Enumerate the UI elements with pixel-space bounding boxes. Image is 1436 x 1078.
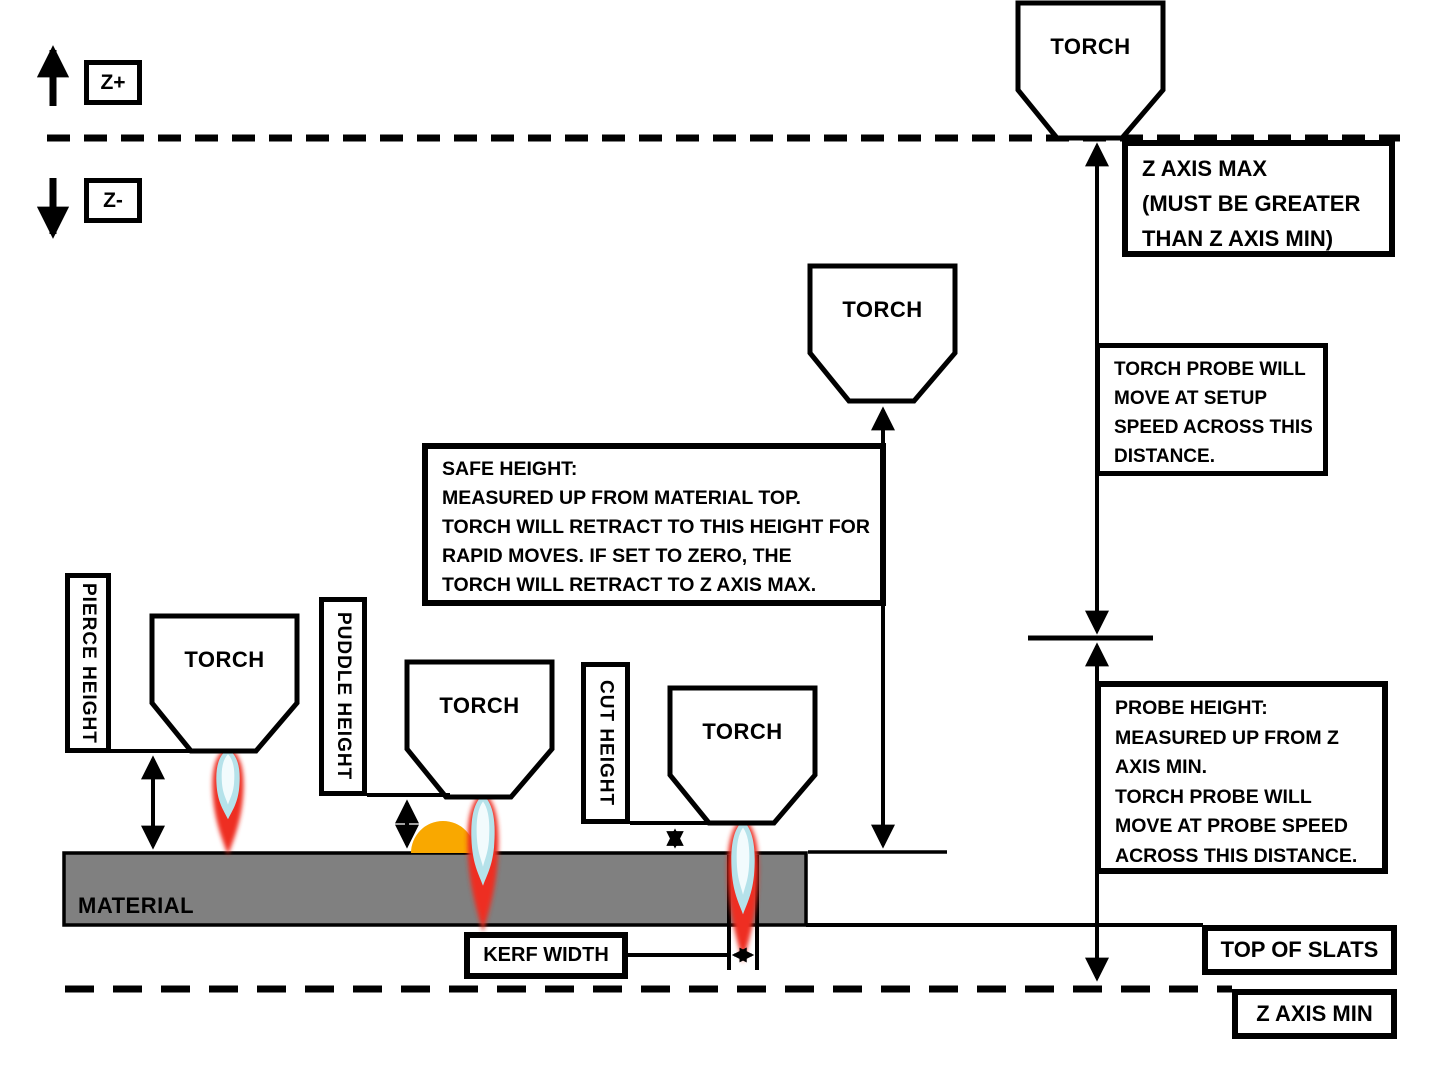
z-minus-box: Z- xyxy=(84,178,142,223)
kerf-width-box: KERF WIDTH xyxy=(464,932,628,979)
z-minus-label: Z- xyxy=(103,189,123,213)
safe-height-box: SAFE HEIGHT: MEASURED UP FROM MATERIAL T… xyxy=(422,443,886,606)
torch-safe-height-label: TORCH xyxy=(810,266,955,354)
pierce-height-box: PIERCE HEIGHT xyxy=(65,573,111,753)
z-plus-box: Z+ xyxy=(84,60,142,105)
z-axis-min-box: Z AXIS MIN xyxy=(1232,989,1397,1039)
flame-pierce-icon xyxy=(212,747,243,855)
torch-probe-setup-box: TORCH PROBE WILL MOVE AT SETUP SPEED ACR… xyxy=(1095,343,1328,476)
torch-top-right-label: TORCH xyxy=(1018,3,1163,91)
material-label: MATERIAL xyxy=(78,893,194,919)
flame-cut-icon xyxy=(727,818,758,962)
cut-height-box: CUT HEIGHT xyxy=(581,662,630,824)
torch-pierce-label: TORCH xyxy=(152,616,297,704)
puddle-height-box: PUDDLE HEIGHT xyxy=(319,597,367,796)
probe-height-box: PROBE HEIGHT: MEASURED UP FROM Z AXIS MI… xyxy=(1095,681,1388,874)
torch-cut-label: TORCH xyxy=(670,688,815,776)
puddle-icon xyxy=(411,821,475,853)
cut-height-dimension xyxy=(630,823,712,846)
pierce-height-dimension xyxy=(110,751,196,846)
z-plus-label: Z+ xyxy=(100,71,125,95)
torch-height-diagram: Z+ Z- TORCH TORCH TORCH TORCH TORCH Z AX… xyxy=(0,0,1436,1078)
torch-puddle-label: TORCH xyxy=(407,662,552,750)
z-axis-max-box: Z AXIS MAX (MUST BE GREATER THAN Z AXIS … xyxy=(1122,140,1395,257)
top-of-slats-box: TOP OF SLATS xyxy=(1202,925,1397,975)
